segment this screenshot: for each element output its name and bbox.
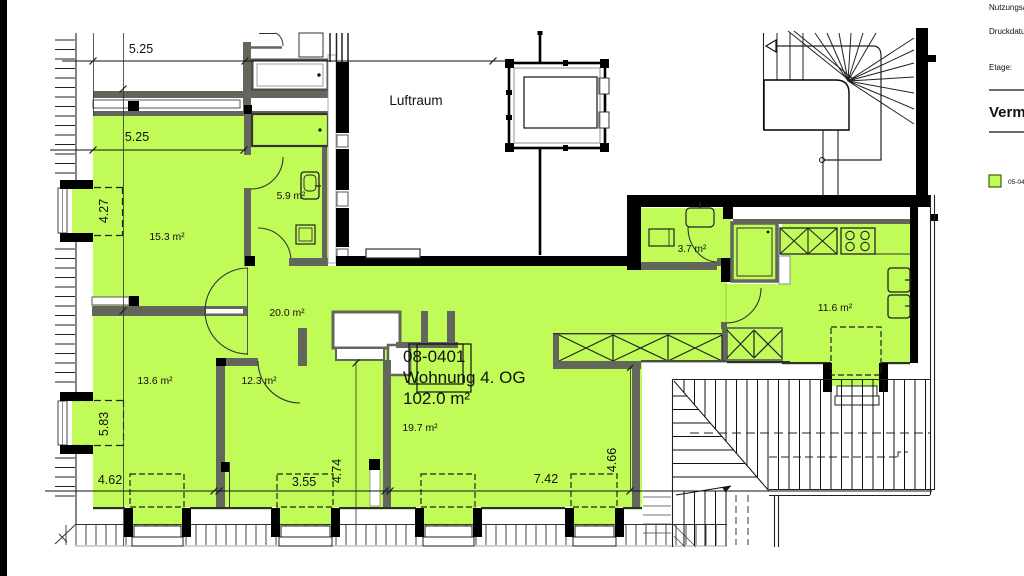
svg-text:3.7 m²: 3.7 m² <box>678 244 707 255</box>
svg-text:5.25: 5.25 <box>125 130 149 144</box>
svg-text:7.42: 7.42 <box>534 472 558 486</box>
svg-text:Verm: Verm <box>989 104 1024 121</box>
svg-text:12.3 m²: 12.3 m² <box>241 376 277 387</box>
svg-text:20.0 m²: 20.0 m² <box>269 308 305 319</box>
svg-text:11.6 m²: 11.6 m² <box>818 303 853 314</box>
svg-text:Druckdatum: Druckdatum <box>989 27 1024 36</box>
svg-text:4.27: 4.27 <box>97 199 111 223</box>
svg-text:05-04: 05-04 <box>1008 179 1024 186</box>
svg-text:13.6 m²: 13.6 m² <box>137 376 173 387</box>
svg-text:4.74: 4.74 <box>330 459 344 483</box>
svg-text:5.83: 5.83 <box>97 412 111 436</box>
svg-text:Nutzungsart: Nutzungsart <box>989 3 1024 12</box>
svg-text:15.3 m²: 15.3 m² <box>149 232 185 243</box>
svg-text:3.55: 3.55 <box>292 475 316 489</box>
svg-text:Wohnung 4. OG: Wohnung 4. OG <box>403 368 526 387</box>
svg-text:102.0 m²: 102.0 m² <box>403 389 470 408</box>
svg-text:Luftraum: Luftraum <box>389 93 442 108</box>
svg-text:4.62: 4.62 <box>98 473 122 487</box>
svg-text:5.9 m²: 5.9 m² <box>277 191 306 202</box>
svg-text:Etage:: Etage: <box>989 63 1012 72</box>
svg-text:08-0401: 08-0401 <box>403 347 465 366</box>
svg-text:19.7 m²: 19.7 m² <box>402 423 438 434</box>
svg-text:4.66: 4.66 <box>605 448 619 472</box>
svg-text:5.25: 5.25 <box>129 42 153 56</box>
